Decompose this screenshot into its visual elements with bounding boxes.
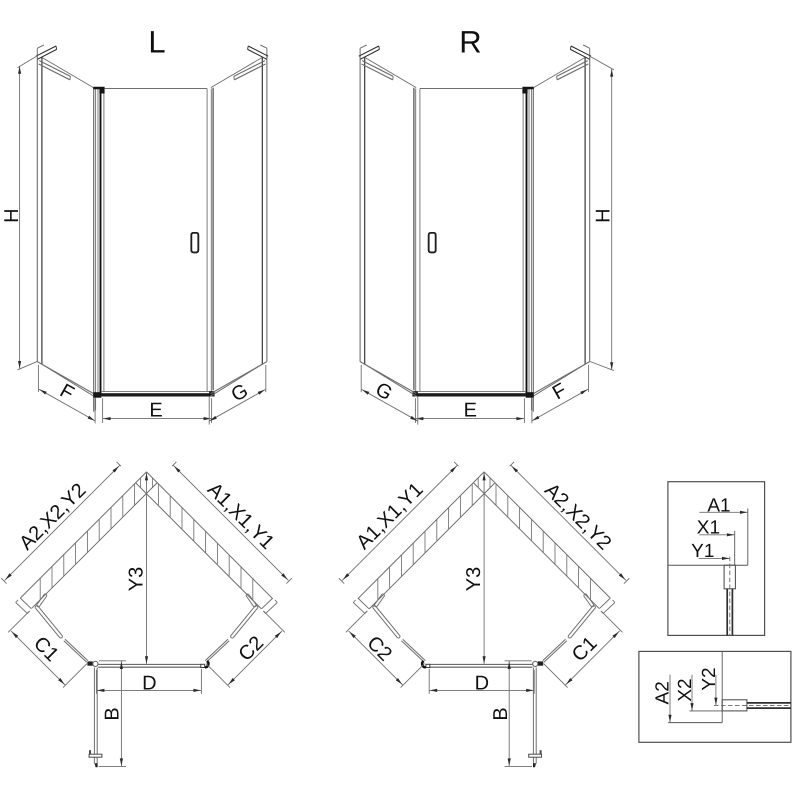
svg-text:A1: A1 [707,495,730,516]
svg-text:E: E [149,399,162,421]
svg-text:D: D [475,672,489,694]
svg-text:Y1: Y1 [691,541,714,562]
svg-text:R: R [459,24,481,59]
svg-text:Y3: Y3 [463,567,485,591]
svg-text:Y2: Y2 [699,667,720,690]
svg-text:A2: A2 [653,681,674,704]
svg-text:B: B [490,707,512,720]
svg-text:E: E [464,399,477,421]
svg-text:H: H [593,208,615,222]
svg-text:L: L [148,24,165,59]
svg-text:H: H [1,208,23,222]
svg-text:X2: X2 [675,678,696,701]
svg-text:B: B [102,707,124,720]
svg-text:D: D [142,672,156,694]
svg-text:Y3: Y3 [126,567,148,591]
svg-text:X1: X1 [697,518,720,539]
